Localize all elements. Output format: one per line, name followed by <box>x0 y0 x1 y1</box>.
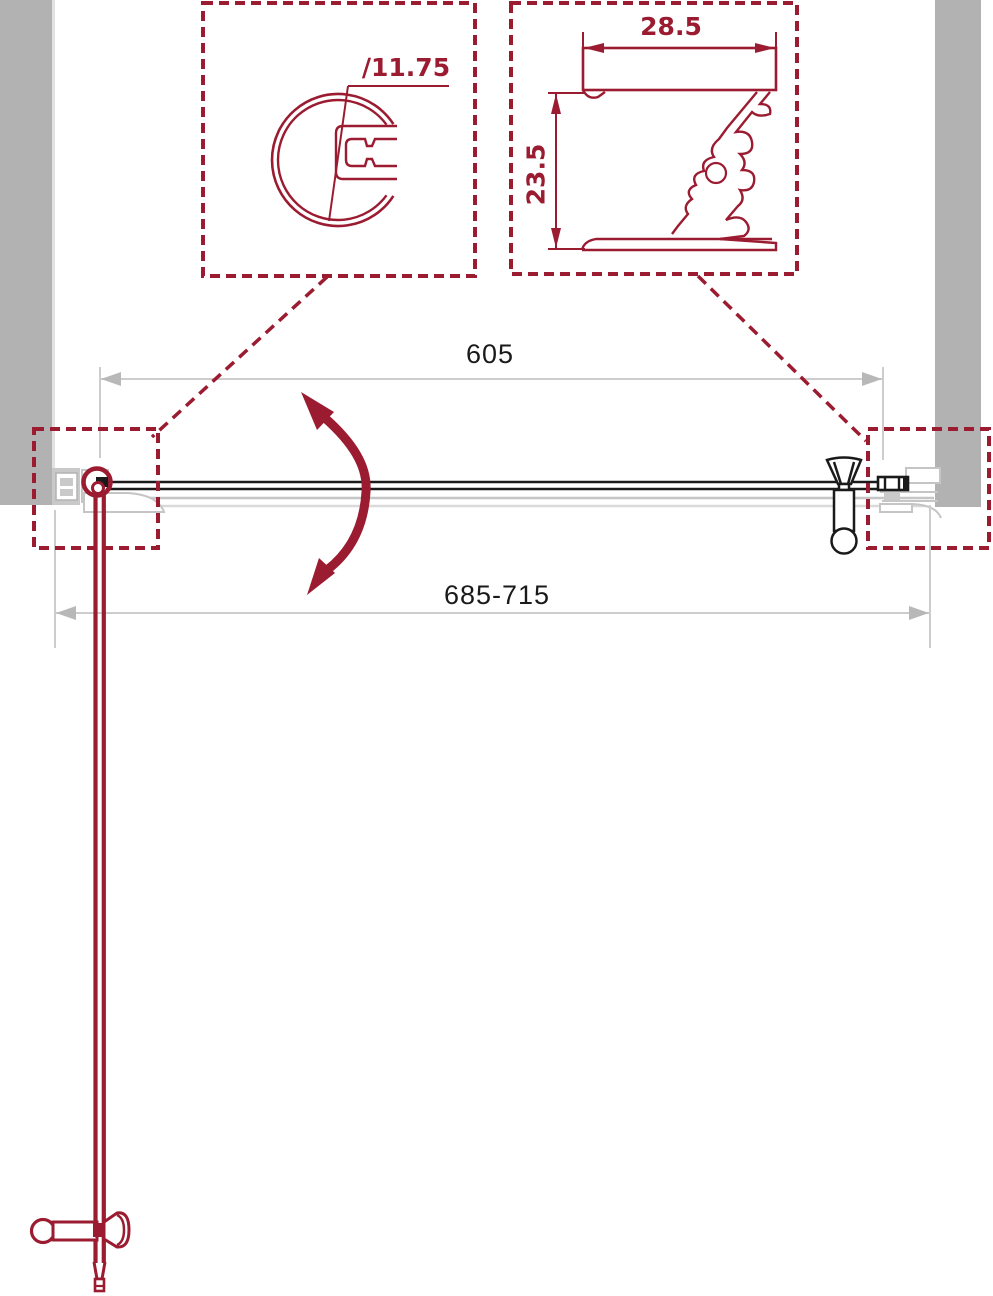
dimension-605 <box>100 367 883 460</box>
detail-wall-profile <box>548 32 776 250</box>
right-wall-profile <box>880 468 941 518</box>
dimension-label-605: 605 <box>400 339 580 370</box>
drawing-layer <box>0 0 993 1296</box>
track-lines <box>150 498 934 506</box>
dimension-label-23-5: 23.5 <box>522 125 551 225</box>
open-door-position <box>32 492 130 1291</box>
door-glass-panel <box>106 477 908 490</box>
dimension-label-diameter: ∕11.75 <box>336 53 476 82</box>
dimension-685-715 <box>55 505 930 648</box>
swing-arc <box>301 392 366 595</box>
dimension-label-28-5: 28.5 <box>611 12 731 41</box>
technical-drawing-canvas: 605 685-715 ∕11.75 28.5 23.5 <box>0 0 993 1296</box>
dimension-label-685-715: 685-715 <box>397 580 597 611</box>
left-wall <box>0 0 55 505</box>
detail-round-profile <box>272 86 449 226</box>
